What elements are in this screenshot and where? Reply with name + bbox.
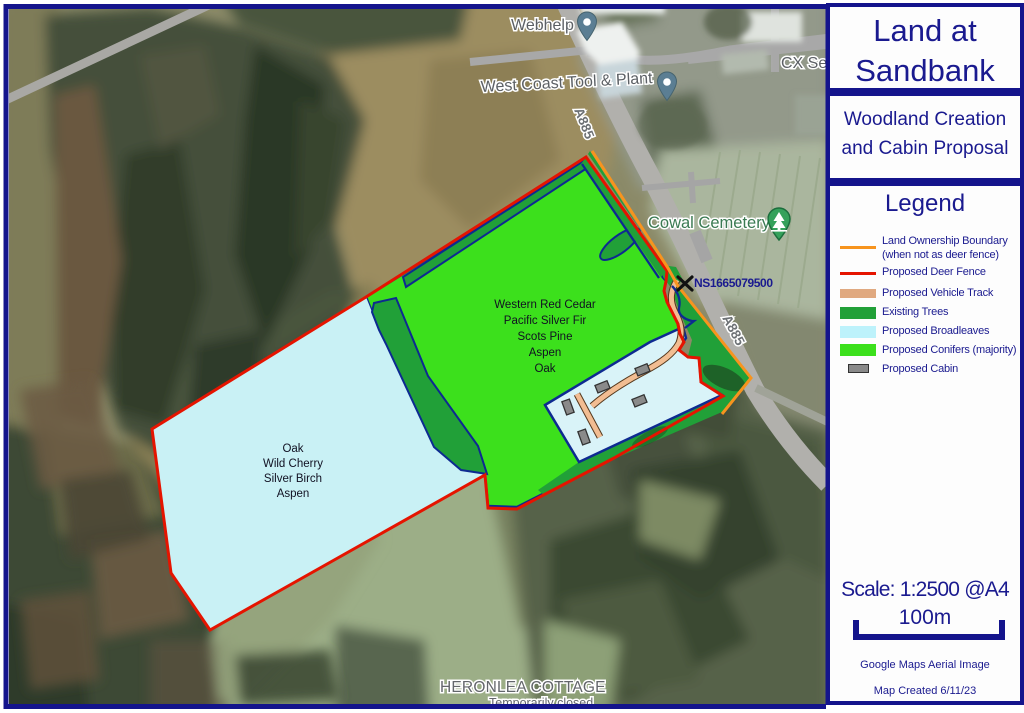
svg-text:Pacific Silver Fir: Pacific Silver Fir: [504, 315, 587, 327]
svg-text:Oak: Oak: [534, 363, 555, 375]
svg-text:Scots Pine: Scots Pine: [518, 331, 573, 343]
svg-text:NS1665079500: NS1665079500: [694, 276, 773, 290]
svg-text:Silver Birch: Silver Birch: [264, 473, 322, 485]
svg-text:Aspen: Aspen: [277, 488, 310, 500]
svg-text:Aspen: Aspen: [529, 347, 562, 359]
svg-text:Oak: Oak: [282, 443, 303, 455]
svg-text:Cowal Cemetery: Cowal Cemetery: [648, 214, 771, 232]
svg-text:Wild Cherry: Wild Cherry: [263, 458, 323, 470]
svg-text:Western Red Cedar: Western Red Cedar: [494, 299, 596, 311]
svg-text:Webhelp: Webhelp: [511, 17, 574, 34]
svg-text:HERONLEA COTTAGE: HERONLEA COTTAGE: [440, 679, 606, 696]
